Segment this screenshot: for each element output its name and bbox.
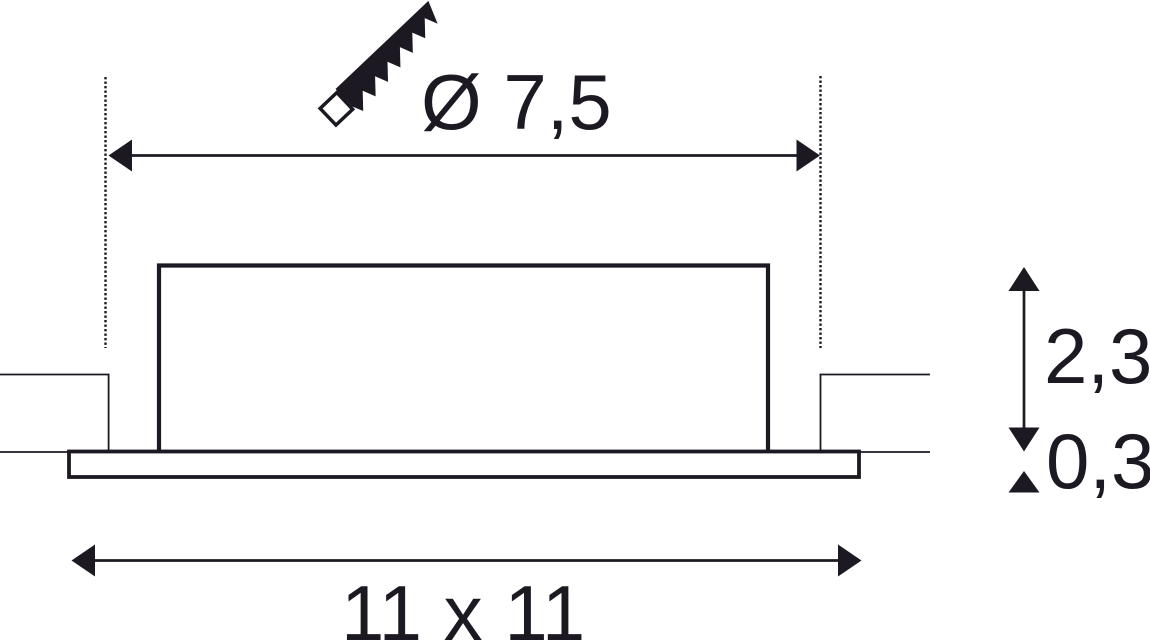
svg-text:11 x 11: 11 x 11 <box>341 569 585 643</box>
svg-text:0,3: 0,3 <box>1046 417 1150 505</box>
svg-text:Ø 7,5: Ø 7,5 <box>421 58 612 146</box>
svg-text:2,3: 2,3 <box>1044 312 1150 400</box>
